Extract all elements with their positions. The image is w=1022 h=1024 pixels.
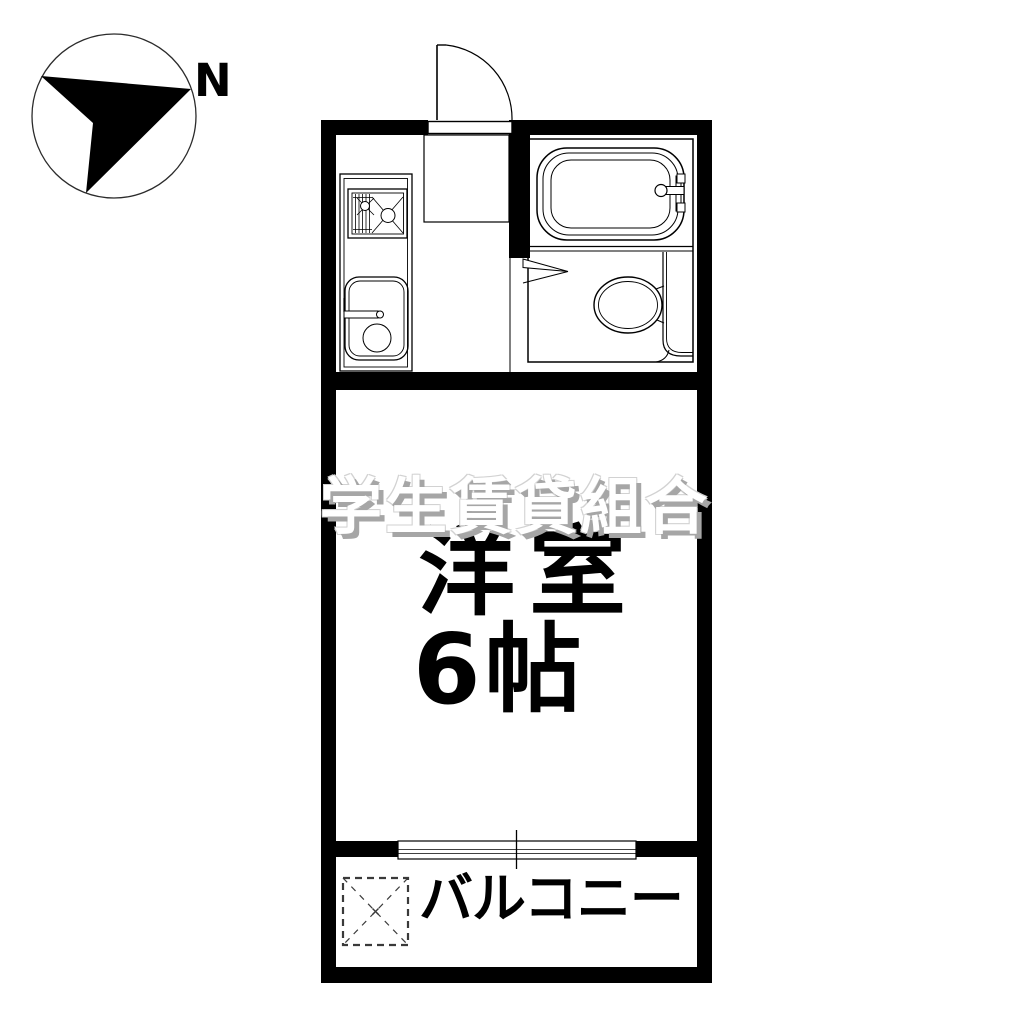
balcony-label: バルコニー: [419, 872, 683, 926]
kitchen-counter: [340, 174, 412, 371]
watermark-text: 学生賃貸組合: [320, 476, 710, 538]
bathroom-unit: [510, 139, 693, 372]
wall-room-divider: [336, 372, 697, 390]
kitchen-unit: [340, 174, 412, 371]
floor-plan-canvas: N 洋室 6帖 バルコニー 学生賃貸組合: [0, 0, 1022, 1024]
wall-bath-partition: [509, 120, 530, 258]
kitchen-sink-icon: [344, 277, 408, 360]
wall-balcony-right: [636, 841, 697, 857]
main-room-size-label: 6帖: [413, 621, 586, 718]
wall-top-left: [321, 120, 428, 135]
entry-step-icon: [424, 135, 509, 222]
gas-stove-icon: [348, 189, 407, 238]
wall-left: [321, 120, 336, 983]
balcony-sliding-window-icon: [398, 830, 636, 869]
wall-top-right: [512, 120, 712, 135]
washing-machine-space-icon: [343, 878, 408, 945]
toilet-icon: [594, 252, 693, 362]
wall-right: [697, 120, 712, 983]
compass-north-label: N: [194, 58, 232, 103]
entrance-swing-door-icon: [424, 45, 512, 222]
door-swing-marker-icon: [510, 258, 568, 372]
wall-balcony-left: [336, 841, 398, 857]
entrance-threshold: [428, 122, 512, 134]
compass-icon: [32, 34, 196, 198]
wall-bottom: [321, 967, 712, 983]
door-swing-arc: [446, 45, 512, 120]
